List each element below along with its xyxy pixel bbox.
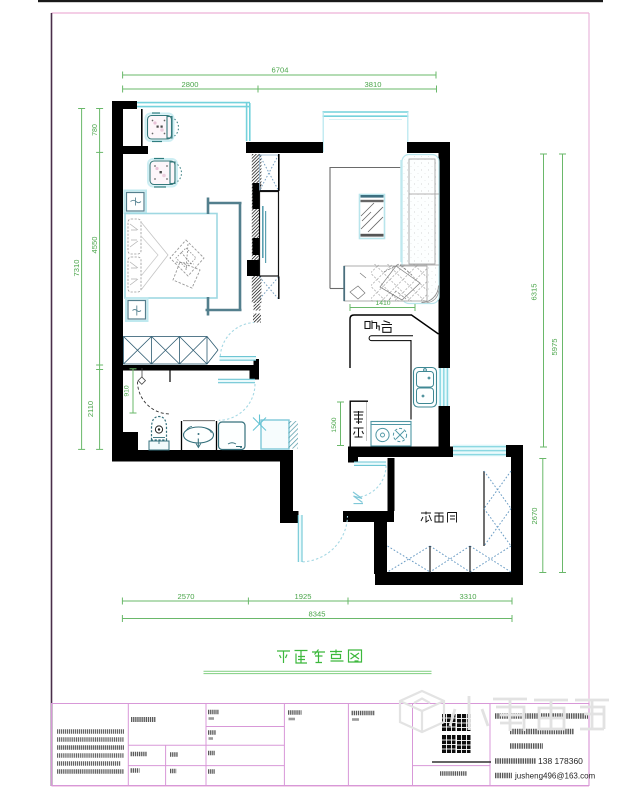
svg-text:2670: 2670 — [530, 508, 539, 525]
svg-text:2570: 2570 — [178, 592, 195, 601]
svg-text:6704: 6704 — [272, 66, 289, 75]
svg-text:1500: 1500 — [331, 417, 338, 432]
svg-text:3310: 3310 — [460, 592, 477, 601]
svg-text:5975: 5975 — [550, 339, 559, 356]
svg-text:7310: 7310 — [72, 260, 81, 277]
svg-text:2110: 2110 — [86, 401, 95, 417]
svg-text:6315: 6315 — [530, 284, 539, 301]
svg-text:8345: 8345 — [309, 610, 326, 619]
svg-text:2800: 2800 — [182, 80, 199, 89]
svg-text:138 178360: 138 178360 — [538, 756, 583, 766]
svg-text:780: 780 — [92, 124, 99, 136]
svg-text:3810: 3810 — [365, 80, 382, 89]
svg-text:1925: 1925 — [295, 592, 312, 601]
svg-text:jusheng496@163.com: jusheng496@163.com — [514, 772, 596, 781]
svg-text:1410: 1410 — [375, 300, 390, 307]
svg-text:4550: 4550 — [90, 237, 99, 254]
svg-text:910: 910 — [124, 385, 131, 397]
